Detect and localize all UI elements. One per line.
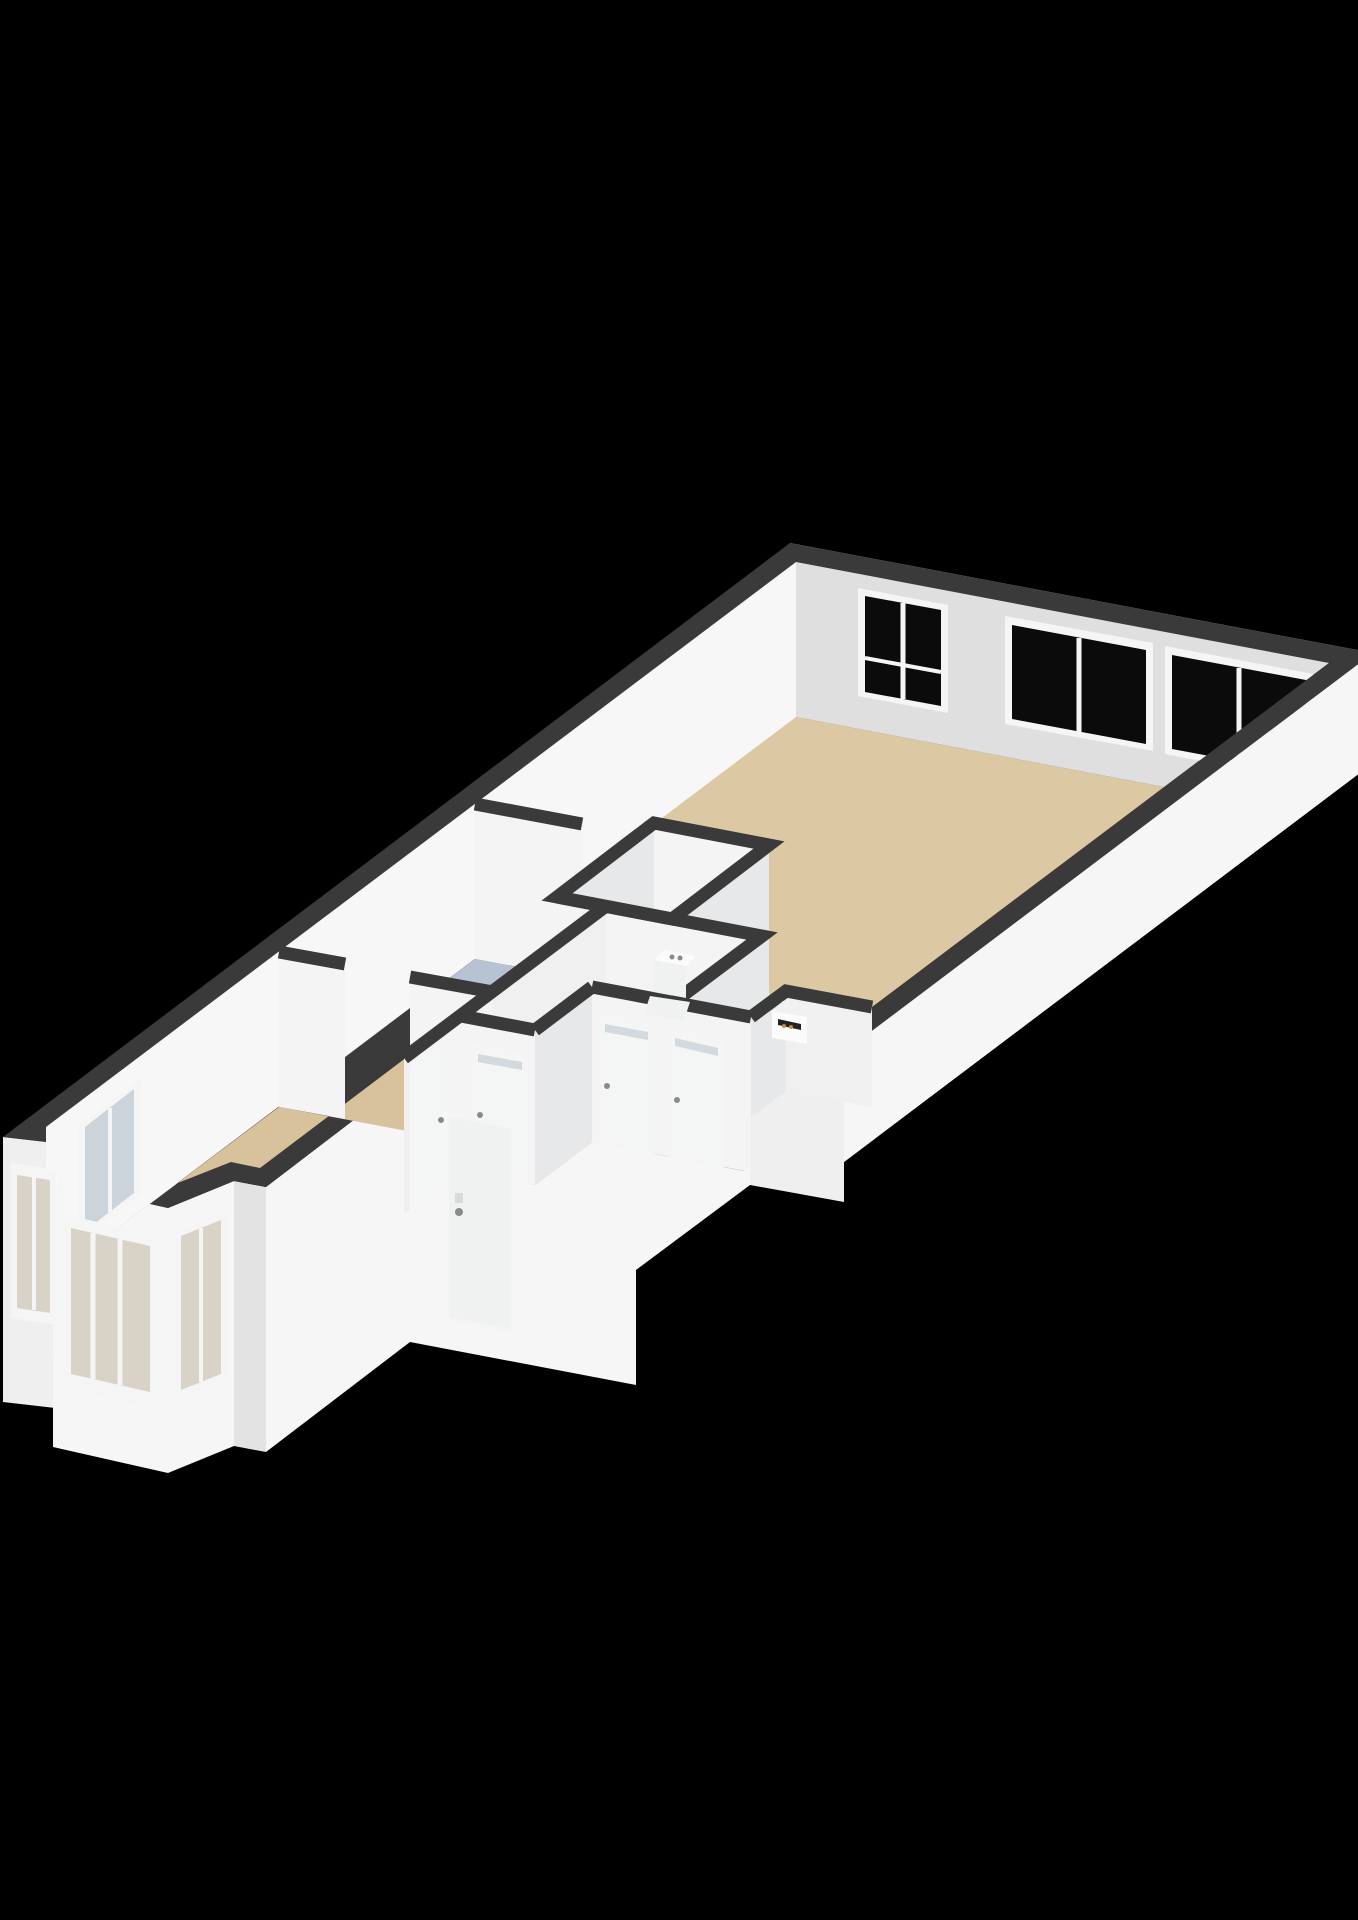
bay-cant-east-window xyxy=(174,1210,228,1400)
window-frame xyxy=(54,1168,63,1360)
northeast-window-1 xyxy=(858,588,948,713)
door-handle xyxy=(438,1117,444,1123)
door-handle xyxy=(455,1208,463,1216)
face-kitchen-bedroom-wall-a xyxy=(279,952,345,1119)
toilet-flush-button xyxy=(670,955,675,960)
door-handle xyxy=(674,1097,680,1103)
door-lock xyxy=(455,1193,463,1203)
toilet-flush-button xyxy=(678,956,683,961)
floorplan-stage xyxy=(0,0,1358,1920)
door-handle xyxy=(477,1112,483,1118)
toilet-tank-front xyxy=(654,960,686,998)
west-end-window xyxy=(11,1163,56,1325)
door-panel xyxy=(447,1114,513,1332)
bay-front-window xyxy=(63,1214,158,1410)
door-bedroom xyxy=(411,1039,445,1208)
door-vestibule xyxy=(600,1015,653,1153)
floorplan-3d-render xyxy=(0,0,1358,1920)
door-panel xyxy=(411,1039,445,1208)
door-handle xyxy=(604,1083,610,1089)
outer-face-bay-jog xyxy=(234,1181,266,1452)
flame-icon xyxy=(782,1024,786,1028)
flame-icon xyxy=(789,1025,793,1029)
bay-cant-west-window xyxy=(54,1168,63,1360)
window-glass xyxy=(71,1228,150,1392)
door-living-room xyxy=(670,1029,723,1167)
front-door xyxy=(447,1114,513,1332)
